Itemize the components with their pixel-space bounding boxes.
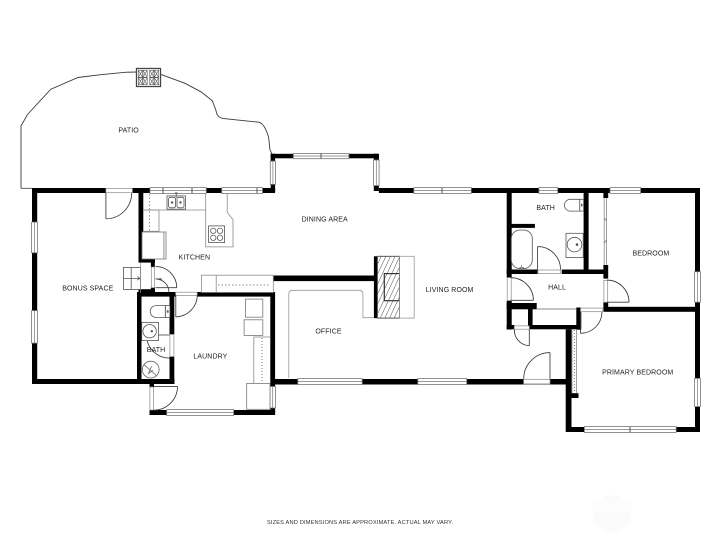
svg-text:DINING AREA: DINING AREA — [302, 217, 348, 224]
svg-text:BEDROOM: BEDROOM — [632, 250, 669, 257]
svg-text:KITCHEN: KITCHEN — [179, 254, 210, 261]
svg-text:OFFICE: OFFICE — [315, 329, 341, 336]
svg-text:PATIO: PATIO — [118, 128, 139, 135]
svg-text:HALL: HALL — [548, 284, 566, 291]
svg-text:SIZES AND DIMENSIONS ARE APPRO: SIZES AND DIMENSIONS ARE APPROXIMATE. AC… — [267, 520, 453, 526]
svg-text:LAUNDRY: LAUNDRY — [193, 353, 227, 360]
svg-text:BONUS SPACE: BONUS SPACE — [62, 285, 113, 292]
svg-text:LIVING ROOM: LIVING ROOM — [426, 287, 474, 294]
svg-text:BATH: BATH — [147, 347, 166, 354]
svg-text:PRIMARY BEDROOM: PRIMARY BEDROOM — [602, 369, 673, 376]
svg-text:BATH: BATH — [536, 205, 555, 212]
